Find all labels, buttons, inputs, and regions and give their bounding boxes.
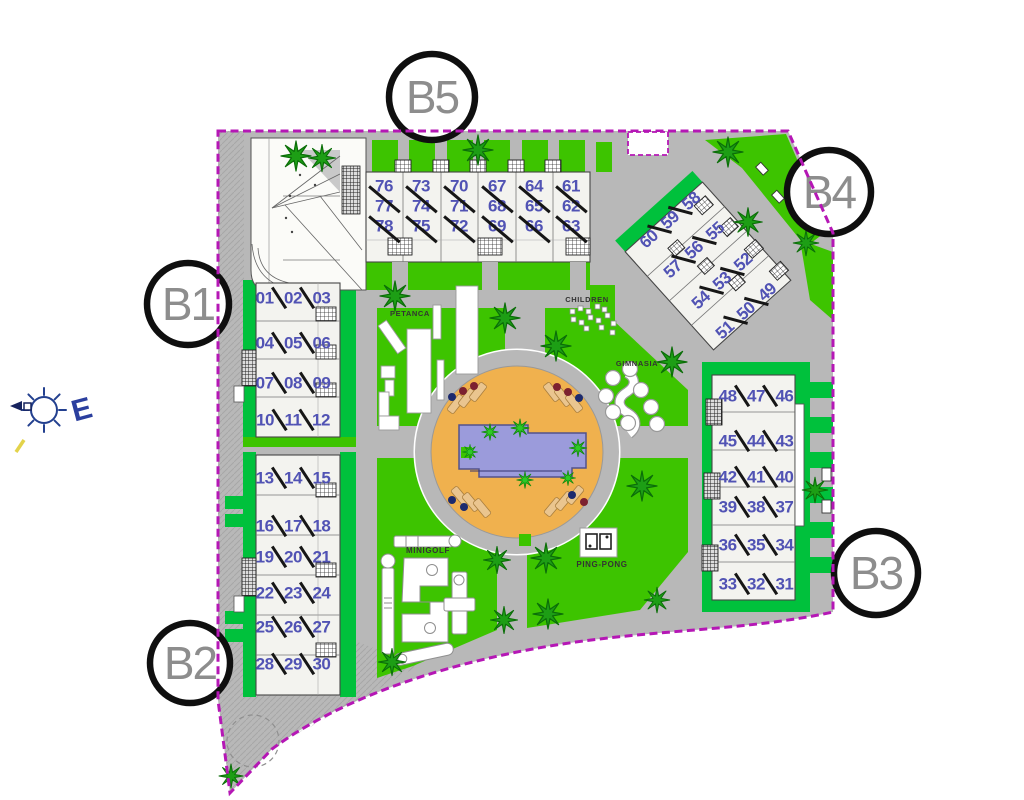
entrance-gate: [628, 132, 668, 155]
amenity-label-children: CHILDREN: [565, 295, 609, 304]
tree-icon: [484, 547, 511, 574]
site-plan-drawing: PETANCA CHILDREN GIMNASIA MINIGOLF PING-…: [0, 0, 1024, 800]
site-plan-page: PETANCA CHILDREN GIMNASIA MINIGOLF PING-…: [0, 0, 1024, 800]
tree-icon: [531, 543, 561, 573]
tree-icon: [490, 303, 520, 333]
amenity-label-gimnasia: GIMNASIA: [616, 359, 658, 368]
amenity-label-petanca: PETANCA: [390, 309, 430, 318]
tree-icon: [533, 599, 563, 629]
tree-icon: [309, 145, 336, 172]
amenity-label-minigolf: MINIGOLF: [406, 546, 450, 555]
building-b3: [702, 375, 804, 600]
pool-plaza: [415, 350, 619, 554]
entrance-structure: [251, 138, 366, 290]
palm-icon: [482, 424, 499, 441]
palm-icon: [561, 471, 576, 486]
tree-icon: [802, 477, 828, 503]
block-marker-b3-label: B3: [850, 547, 903, 599]
tree-icon: [713, 137, 743, 167]
ping-pong-area: [580, 528, 617, 557]
palm-icon: [511, 419, 529, 437]
block-marker-b1-label: B1: [162, 278, 215, 330]
scale-tick: [16, 440, 24, 452]
tree-icon: [380, 281, 410, 311]
compass-arrow-icon: [10, 401, 22, 411]
palm-icon: [517, 472, 534, 489]
tree-icon: [379, 649, 406, 676]
tree-icon: [657, 347, 687, 377]
palm-icon: [569, 439, 586, 456]
block-marker-b4-label: B4: [803, 166, 857, 218]
compass-east-label: E: [68, 391, 96, 428]
block-marker-b5-label: B5: [406, 71, 459, 123]
tree-icon: [463, 135, 493, 165]
tree-icon: [541, 331, 571, 361]
tree-icon: [734, 208, 763, 237]
compass: E: [10, 388, 96, 452]
tree-icon: [281, 141, 311, 171]
block-marker-b2-label: B2: [164, 637, 217, 689]
palm-icon: [463, 445, 478, 460]
tree-icon: [491, 607, 518, 634]
tree-icon: [644, 587, 670, 613]
tree-icon: [627, 471, 657, 501]
amenity-label-ping-pong: PING-PONG: [576, 560, 627, 569]
pool: [459, 425, 586, 477]
